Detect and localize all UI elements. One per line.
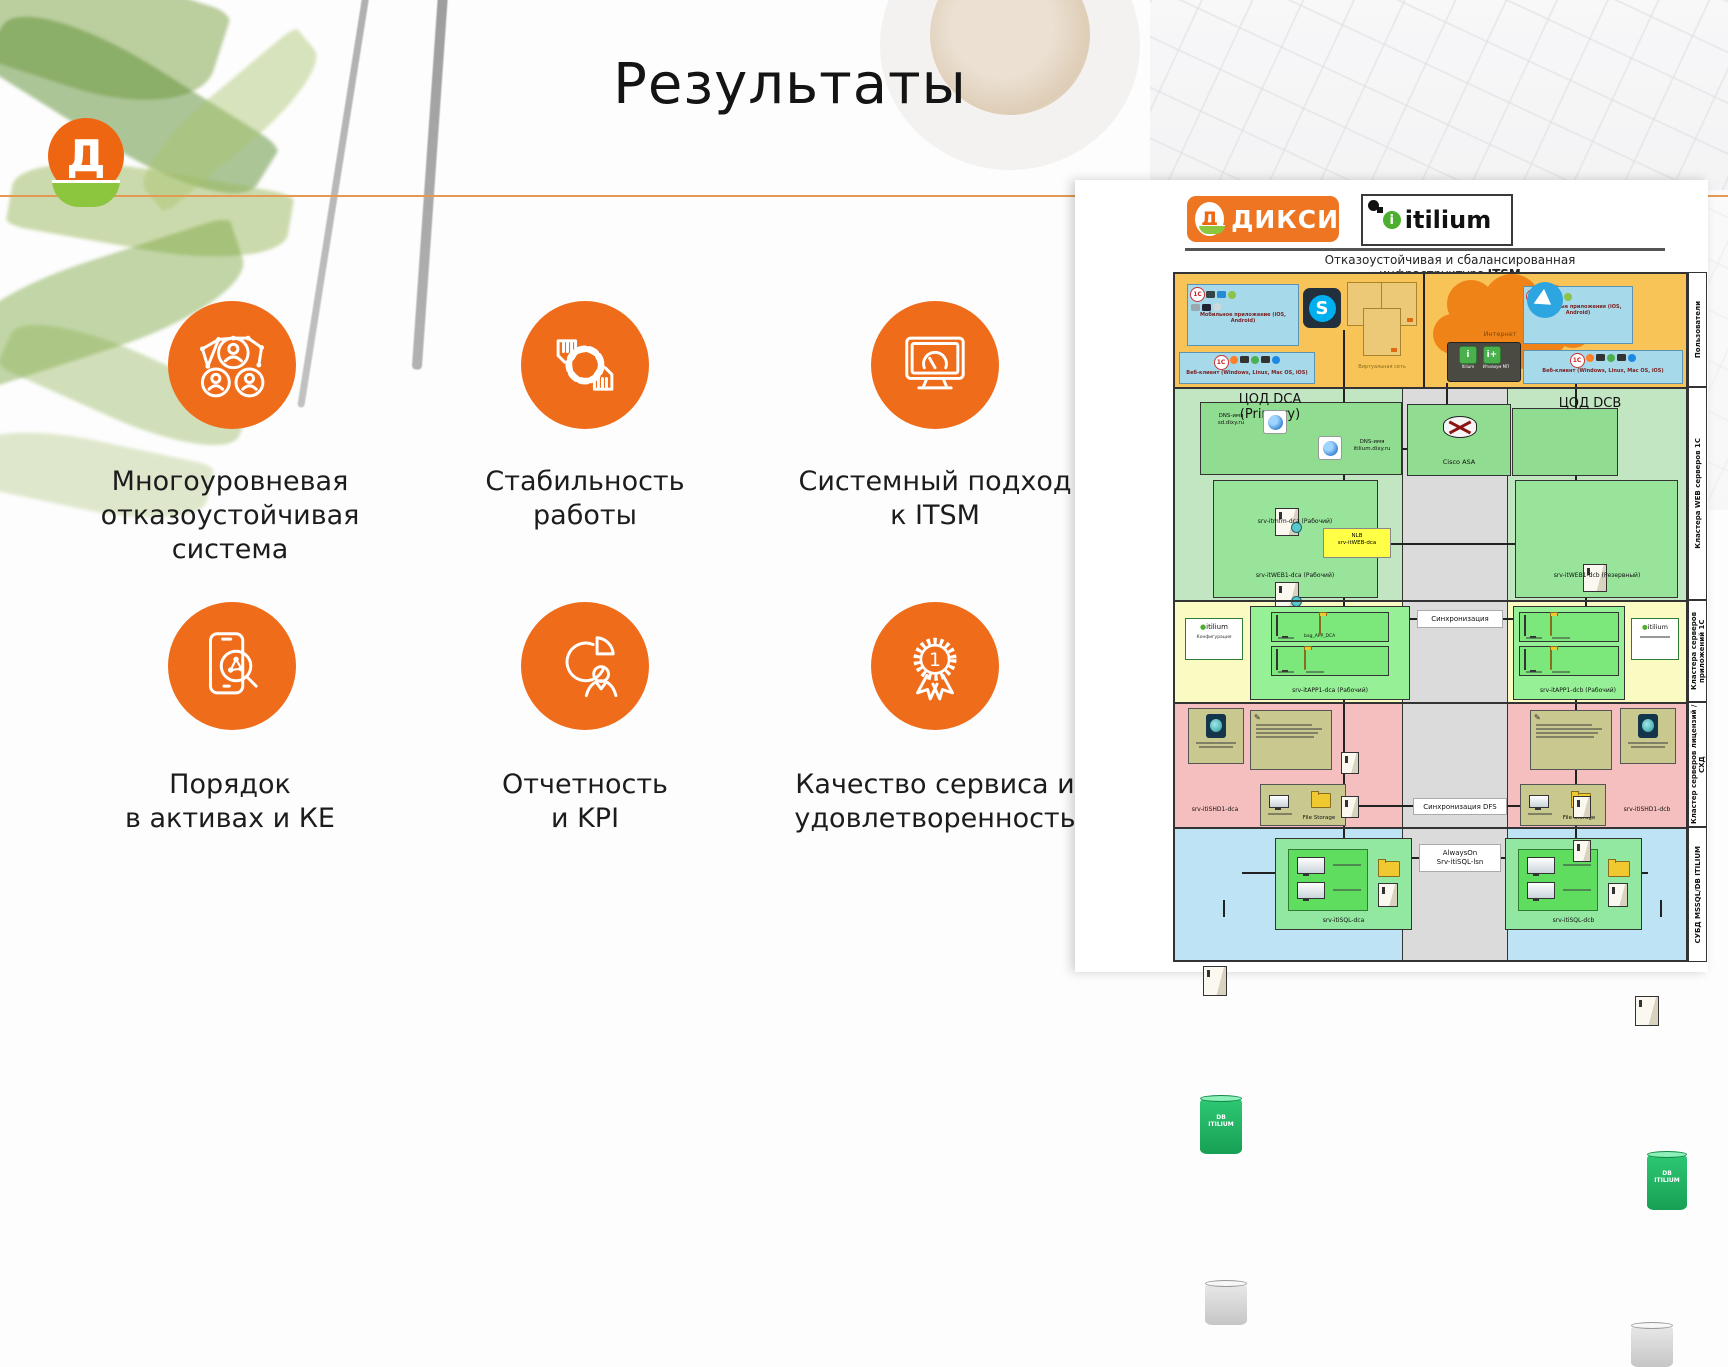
itilium-mini-logo: itilium [1648, 623, 1668, 631]
feature-2-circle [521, 301, 649, 429]
firefox-icon [1586, 354, 1594, 362]
db-itilium-cylinder: DB ITILIUM [1200, 1098, 1242, 1154]
app-box-dca: bag_APP_DCA [1250, 606, 1410, 700]
pencil-icon: ✎ [1534, 714, 1608, 722]
hands-ring-icon [542, 322, 628, 408]
phone-device-icon [1206, 291, 1215, 298]
server-icon [1341, 752, 1359, 774]
server-icon [1573, 840, 1591, 862]
laptop-icon [1596, 354, 1605, 361]
cisco-asa-icon [1443, 416, 1477, 438]
skype-icon: S [1303, 288, 1341, 328]
page-title: Результаты [400, 52, 1180, 117]
android-icon [1564, 293, 1572, 301]
db-itilium-label: DB ITILIUM [1647, 1170, 1687, 1184]
itilium-app-icon: i [1459, 346, 1477, 364]
phone-search-icon [189, 623, 275, 709]
folder-icon [1550, 649, 1552, 670]
sync-dfs-label: Синхронизация DFS [1413, 798, 1507, 815]
feature-5-label: Отчетность и KPI [385, 768, 785, 836]
monitor-gauge-icon [892, 322, 978, 408]
chrome-icon [1607, 354, 1615, 362]
sql-server-dca-label: srv-itiSQL-dca [1281, 917, 1406, 924]
itilium-mini-logo: itilium [1206, 623, 1228, 631]
monitor-icon [1524, 649, 1526, 670]
share-box: bag_APP_DCA [1271, 612, 1389, 642]
feature-3-circle [871, 301, 999, 429]
dixy-logo: Д [46, 118, 126, 208]
itilium-mp-caption: Итилиум МП [1483, 364, 1509, 369]
server-icon [1635, 996, 1659, 1026]
dixy-mini-icon: Д [1195, 202, 1224, 236]
apple-icon [1213, 303, 1221, 311]
monitor-icon [1527, 882, 1555, 899]
dcb-edge-box [1512, 408, 1618, 476]
alwayson-label: AlwaysOn Srv-itiSQL-lsn [1419, 844, 1501, 872]
app-server-dca-label: srv-itAPP1-dca (Рабочий) [1255, 687, 1405, 694]
sync-label: Синхронизация [1417, 610, 1503, 628]
monitor-icon [1527, 857, 1555, 874]
sql-panel [1288, 849, 1368, 911]
folder-icon [1319, 614, 1321, 635]
nlb-box: NLB srv-itWEB-dca [1323, 528, 1391, 558]
dns-globe-icon [1318, 436, 1342, 460]
mobile-caption: Мобильное приложение (iOS, Android) [1190, 312, 1296, 324]
db-itilium-cylinder: DB ITILIUM [1647, 1154, 1687, 1210]
internet-caption: Интернет [1465, 330, 1535, 338]
itilium-i-icon: i [1383, 211, 1401, 229]
itilium-phone-icon [1368, 200, 1379, 211]
tablet-device-icon [1217, 291, 1226, 298]
award-medal-icon: 1 [892, 623, 978, 709]
folder-icon [1304, 649, 1306, 670]
file-storage-box-dcb: File Storage [1520, 784, 1606, 826]
feature-1-circle [168, 301, 296, 429]
1c-logo-icon: 1С [1214, 355, 1229, 370]
shd-server-dcb-label: srv-itiSHD1-dcb [1607, 806, 1687, 813]
pencil-icon: ✎ [1254, 714, 1328, 722]
monitor-icon [1276, 649, 1278, 670]
tablet-device-icon [1202, 304, 1211, 311]
dcb-title: ЦОД DCB [1545, 396, 1635, 411]
sql-server-dcb-label: srv-itiSQL-dcb [1511, 917, 1636, 924]
folder-icon [1311, 793, 1331, 808]
web-clients-left: 1С Веб-клиент (Windows, Linux, Mac OS, i… [1179, 352, 1315, 384]
web-caption: Веб-клиент (Windows, Linux, Mac OS, iOS) [1526, 368, 1680, 374]
network-caption: Виртуальная сеть [1337, 364, 1427, 370]
itilium-config-box: ●itilium Конфигурация [1185, 618, 1243, 660]
file-storage-box-dca: File Storage [1260, 784, 1346, 826]
feature-2-label: Стабильность работы [385, 465, 785, 533]
feature-6-circle: 1 [871, 602, 999, 730]
laptop-icon [1240, 356, 1249, 363]
pie-person-icon [542, 623, 628, 709]
dns-sd-label: DNS-имя sd.dixy.ru [1203, 413, 1259, 427]
server-icon [1573, 796, 1591, 818]
safari-icon [1628, 354, 1636, 362]
diagram-itilium-logo: i itilium [1361, 194, 1513, 246]
license-key-icon [1638, 714, 1658, 738]
side-label-app-cluster: Кластера серверов приложений 1С [1688, 600, 1707, 702]
monitor-icon [1297, 857, 1325, 874]
web-caption: Веб-клиент (Windows, Linux, Mac OS, iOS) [1182, 370, 1312, 376]
mobile-clients-left: 1С Мобильное приложение (iOS, Android) [1187, 284, 1299, 346]
laptop-icon [1617, 354, 1626, 361]
itilium-app-caption: Itilium [1459, 364, 1477, 369]
monitor-icon [1297, 882, 1325, 899]
web-server-dca-label: srv-itWEB1-dca (Рабочий) [1215, 572, 1375, 579]
side-label-web-cluster: Кластера WEB серверов 1С [1688, 387, 1707, 600]
server-icon [1378, 883, 1398, 907]
server-icon [1203, 966, 1227, 996]
diagram-dixy-logo: Д ДИКСИ [1187, 196, 1339, 242]
1c-logo-icon: 1С [1190, 287, 1205, 302]
diagram-title-line1: Отказоустойчивая и сбалансированная [1235, 253, 1665, 267]
keyboard-photo [1150, 0, 1728, 190]
network-users-icon [189, 322, 275, 408]
itilium-config-box: ●itilium [1631, 618, 1679, 660]
feature-4-circle [168, 602, 296, 730]
license-key-icon [1206, 714, 1226, 738]
backup-db-cylinder [1205, 1283, 1247, 1325]
safari-icon [1272, 356, 1280, 364]
backup-db-cylinder [1631, 1325, 1673, 1367]
android-icon [1228, 291, 1236, 299]
feature-5-circle [521, 602, 649, 730]
monitor-icon [1529, 795, 1549, 808]
share-box [1519, 646, 1619, 676]
config-caption: Конфигурация [1186, 635, 1242, 640]
slide: { "slide": { "title": "Результаты", "log… [0, 0, 1728, 972]
monitor-icon [1269, 795, 1289, 808]
feature-1-label: Многоуровневая отказоустойчивая система [30, 465, 430, 567]
web-clients-right: 1С Веб-клиент (Windows, Linux, Mac OS, i… [1523, 350, 1683, 384]
license-server-box [1620, 708, 1676, 764]
dixy-logo-text: ДИКСИ [1231, 205, 1339, 234]
phone-device-icon [1191, 304, 1200, 311]
chrome-icon [1251, 356, 1259, 364]
network-box-icon [1363, 308, 1401, 356]
web-server-dcb-label: srv-itWEB1-dcb (Резервный) [1517, 572, 1677, 579]
feature-4-label: Порядок в активах и КЕ [30, 768, 430, 836]
side-label-license: Кластер серверов лицензий /СХД [1688, 702, 1707, 827]
app-box-dcb [1513, 606, 1625, 700]
tasks-list-box: ✎ [1530, 710, 1612, 770]
diagram-header-rule [1185, 248, 1665, 251]
side-label-users: Пользователи [1688, 272, 1707, 387]
dixy-logo-leaf [52, 180, 120, 207]
license-server-box [1188, 708, 1244, 764]
db-itilium-label: DB ITILIUM [1200, 1114, 1242, 1128]
folder-icon [1550, 615, 1552, 636]
itilium-mp-app-icon: i+ [1483, 346, 1501, 364]
server-icon [1608, 883, 1628, 907]
svg-text:1: 1 [929, 650, 941, 671]
dns-globe-icon [1263, 410, 1287, 434]
1c-logo-icon: 1С [1570, 353, 1585, 368]
monitor-icon [1276, 615, 1278, 636]
itilium-apps-box: i Itilium i+ Итилиум МП [1447, 342, 1521, 382]
side-label-db: СУБД MSSQL/DB ITILIUM [1688, 827, 1707, 962]
telegram-icon [1527, 282, 1563, 318]
folder-icon [1378, 861, 1400, 877]
laptop-icon [1261, 356, 1270, 363]
file-storage-label: File Storage [1291, 815, 1347, 821]
itilium-logo-text: itilium [1405, 206, 1491, 234]
shd-server-dca-label: srv-itiSHD1-dca [1175, 806, 1255, 813]
folder-icon [1608, 861, 1630, 877]
share-box [1519, 612, 1619, 642]
sql-box-dca: srv-itiSQL-dca [1275, 838, 1412, 930]
app-server-dcb-label: srv-itAPP1-dcb (Рабочий) [1513, 687, 1643, 694]
web-mgmt-server-label: srv-itmfm-dca (Рабочий) [1215, 518, 1375, 525]
dns-itilium-label: DNS-имя itilium.dixy.ru [1343, 439, 1401, 453]
share-box [1271, 646, 1389, 676]
monitor-icon [1524, 615, 1526, 636]
cisco-label: Cisco ASA [1415, 458, 1503, 466]
itsm-diagram-page: Д ДИКСИ i itilium Отказоустойчивая и сба… [1075, 180, 1708, 972]
firefox-icon [1230, 356, 1238, 364]
tasks-list-box: ✎ [1250, 710, 1332, 770]
server-icon [1341, 796, 1359, 818]
